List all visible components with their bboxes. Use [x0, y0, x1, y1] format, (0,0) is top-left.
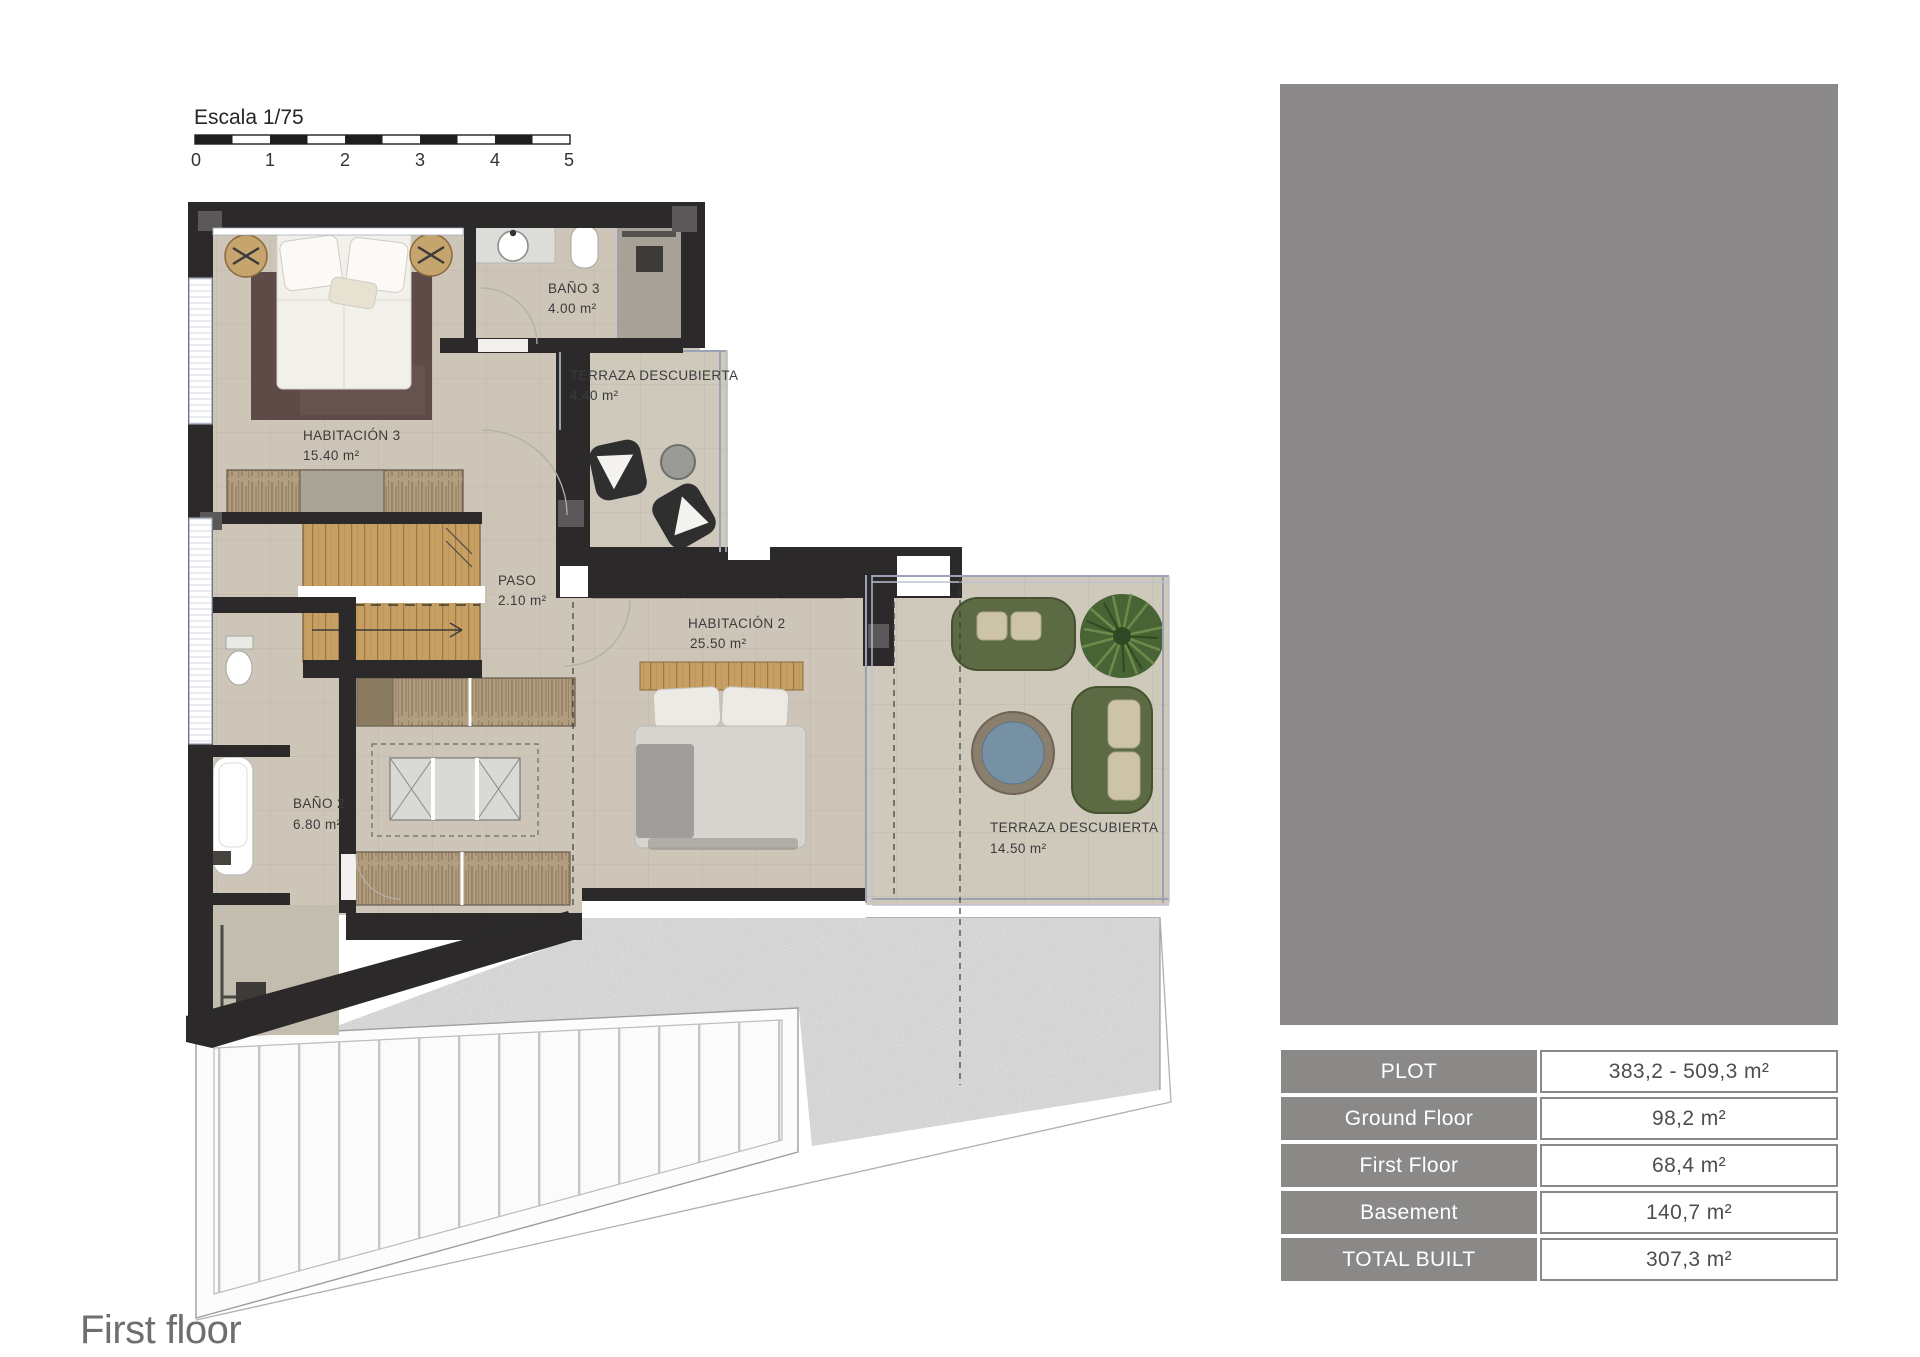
table-row: PLOT 383,2 - 509,3 m² — [1281, 1050, 1838, 1093]
table-row: First Floor 68,4 m² — [1281, 1144, 1838, 1187]
staircase — [298, 522, 485, 662]
row-label-first-floor: First Floor — [1281, 1144, 1537, 1187]
room-label-habitacion-2: HABITACIÓN 2 — [688, 616, 786, 631]
table-row: TOTAL BUILT 307,3 m² — [1281, 1238, 1838, 1281]
scale-tick-4: 4 — [490, 150, 500, 170]
room-area-terraza-large: 14.50 m² — [990, 841, 1047, 856]
room-area-habitacion-3: 15.40 m² — [303, 448, 360, 463]
room-label-habitacion-3: HABITACIÓN 3 — [303, 428, 401, 443]
row-label-ground-floor: Ground Floor — [1281, 1097, 1537, 1140]
row-value-basement: 140,7 m² — [1540, 1191, 1838, 1234]
row-value-plot: 383,2 - 509,3 m² — [1540, 1050, 1838, 1093]
room-label-bano-2: BAÑO 2 — [293, 796, 345, 811]
row-value-ground-floor: 98,2 m² — [1540, 1097, 1838, 1140]
room-area-terraza-small: 4.40 m² — [570, 388, 619, 403]
pergola-roof — [196, 1000, 806, 1330]
row-label-total-built: TOTAL BUILT — [1281, 1238, 1537, 1281]
floor-caption: First floor — [80, 1308, 241, 1353]
scale-tick-5: 5 — [564, 150, 574, 170]
row-value-total-built: 307,3 m² — [1540, 1238, 1838, 1281]
scale-label: Escala 1/75 — [194, 106, 304, 129]
scale-bar: Escala 1/75 0 1 2 3 4 5 — [191, 106, 574, 170]
room-area-bano-3: 4.00 m² — [548, 301, 597, 316]
table-row: Ground Floor 98,2 m² — [1281, 1097, 1838, 1140]
window-left-lower — [189, 518, 212, 744]
room-label-paso: PASO — [498, 573, 536, 588]
bed-habitacion-3 — [251, 229, 432, 420]
plant — [1080, 594, 1164, 678]
area-summary-table: PLOT 383,2 - 509,3 m² Ground Floor 98,2 … — [1281, 1050, 1838, 1285]
room-area-paso: 2.10 m² — [498, 593, 547, 608]
row-label-plot: PLOT — [1281, 1050, 1537, 1093]
window-top — [213, 228, 463, 235]
window-left-upper — [189, 278, 212, 424]
room-label-terraza-small: TERRAZA DESCUBIERTA — [570, 368, 738, 383]
scale-tick-0: 0 — [191, 150, 201, 170]
row-label-basement: Basement — [1281, 1191, 1537, 1234]
bed-habitacion-2 — [635, 662, 806, 850]
nightstand-right — [410, 234, 452, 276]
wardrobe-habitacion-3 — [227, 470, 463, 516]
photo-placeholder — [1280, 84, 1838, 1025]
scale-tick-2: 2 — [340, 150, 350, 170]
row-value-first-floor: 68,4 m² — [1540, 1144, 1838, 1187]
nightstand-left — [225, 235, 267, 277]
room-label-bano-3: BAÑO 3 — [548, 281, 600, 296]
room-area-bano-2: 6.80 m² — [293, 817, 342, 832]
table-row: Basement 140,7 m² — [1281, 1191, 1838, 1234]
scale-tick-3: 3 — [415, 150, 425, 170]
scale-tick-1: 1 — [265, 150, 275, 170]
room-area-habitacion-2: 25.50 m² — [690, 636, 747, 651]
room-label-terraza-large: TERRAZA DESCUBIERTA — [990, 820, 1158, 835]
